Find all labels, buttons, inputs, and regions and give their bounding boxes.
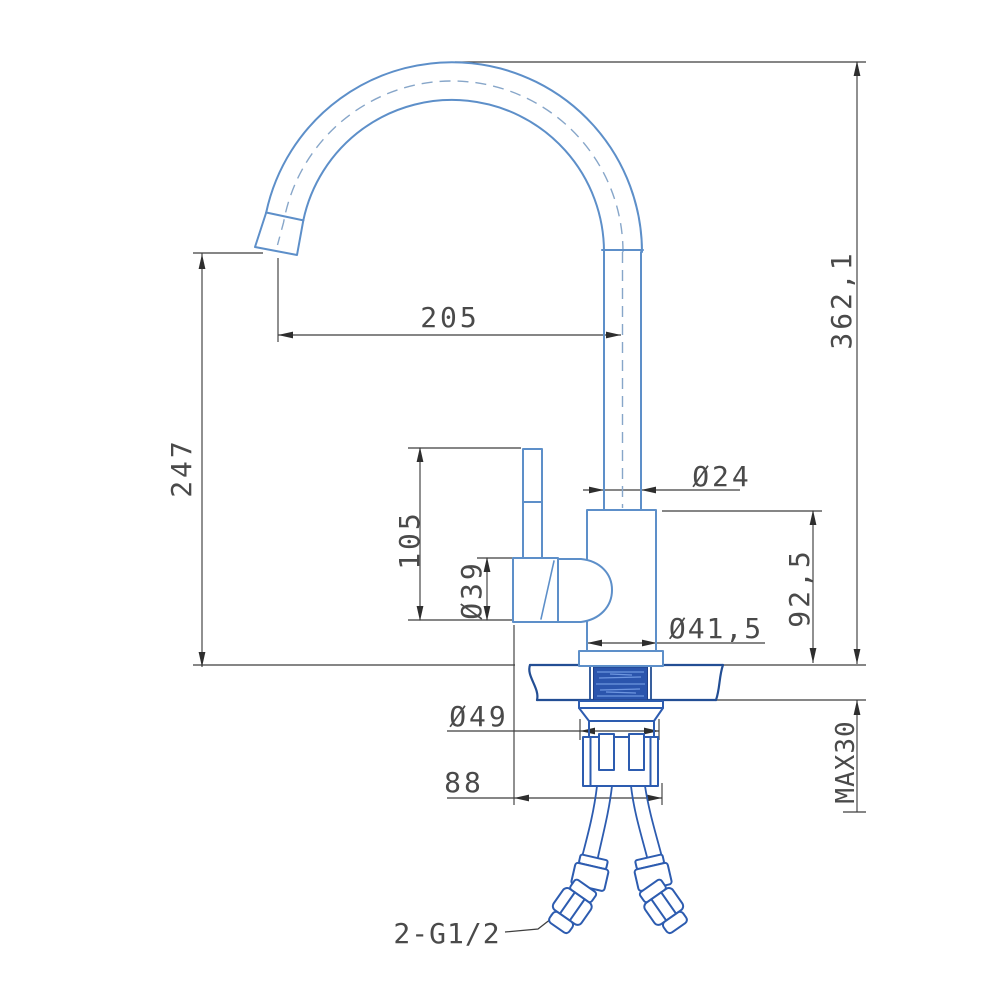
dim-under-counter-depth: 88 [444, 766, 484, 799]
escutcheon-cone [579, 708, 663, 721]
aerator-joint [266, 213, 303, 221]
dim-overall-height: 362,1 [825, 250, 858, 349]
supply-hoses [543, 786, 692, 938]
faucet-dimension-drawing: 205 247 362,1 Ø24 105 Ø39 92,5 Ø41,5 Ø49… [0, 0, 1000, 1000]
dim-spout-height: 247 [165, 438, 198, 498]
spout-outer-arc [266, 62, 642, 252]
handle-lever [523, 449, 542, 560]
dim-pipe-diameter: Ø24 [692, 460, 752, 493]
dim-handle-diameter: Ø39 [455, 560, 488, 620]
mounting-nut [583, 737, 658, 786]
spout-inner-arc [303, 100, 604, 252]
valve-dome [558, 559, 612, 622]
nut-slot [599, 734, 614, 770]
dim-body-height: 92,5 [783, 548, 816, 627]
base-flange [579, 651, 663, 666]
dim-handle-height: 105 [393, 510, 426, 570]
dim-max-counter-thickness: MAX30 [831, 720, 861, 803]
dim-spout-reach: 205 [420, 301, 480, 334]
washer [579, 701, 663, 708]
dim-base-diameter: Ø49 [449, 700, 509, 733]
mounting-hardware [579, 701, 663, 786]
handle-base [513, 558, 558, 622]
nut-slot [629, 734, 644, 770]
dim-body-diameter: Ø41,5 [669, 612, 763, 645]
countertop [529, 665, 723, 700]
drawing-canvas: 205 247 362,1 Ø24 105 Ø39 92,5 Ø41,5 Ø49… [0, 0, 1000, 1000]
thread-callout: 2-G1/2 [393, 917, 500, 950]
